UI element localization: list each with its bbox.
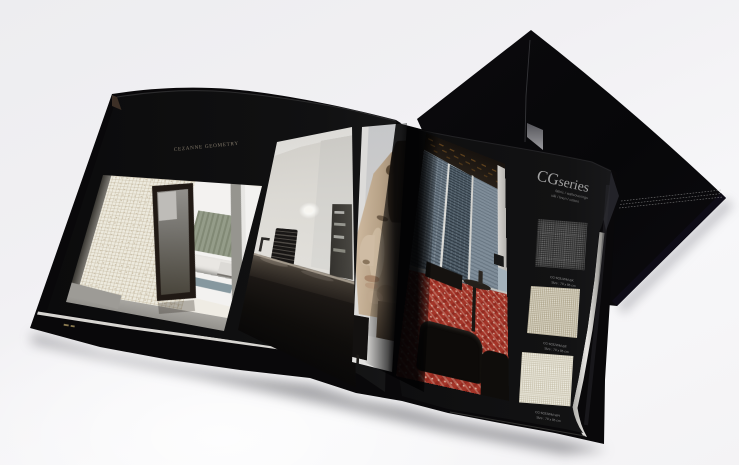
svg-text:CEZANNE GEOMETRY: CEZANNE GEOMETRY [174, 141, 240, 153]
